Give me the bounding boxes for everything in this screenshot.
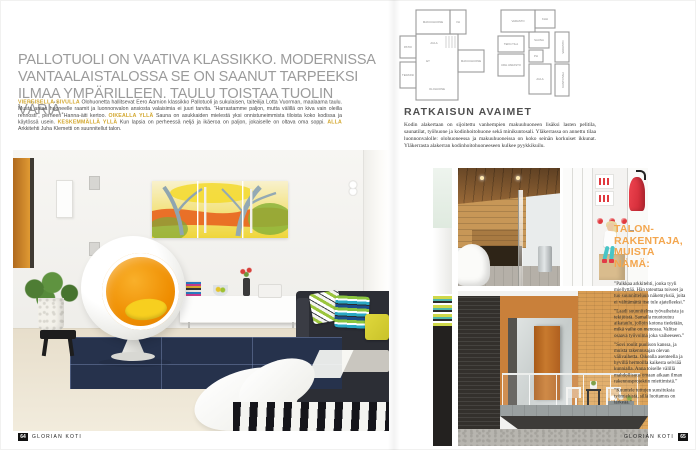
wall-vent [89,176,100,190]
solution-keys-text: Kodin alakertaan on sijoitettu vanhempie… [404,121,596,151]
page-number: 65 [678,433,688,441]
sideboard [180,296,302,323]
wall-picture-frame [56,180,73,218]
living-room-photo [13,150,389,431]
floor-plan-lower: VARASTO KHH SAUNA PH TEKN.TILA URH.VARAS… [498,10,569,96]
svg-text:MAKUUHUONE: MAKUUHUONE [461,59,481,63]
glass-wall [518,190,523,286]
terrace-table [586,389,601,391]
plant-pot [38,298,64,330]
folio-left: 64 GLORIAN KOTI [18,432,82,442]
floor-plan-upper: MAKUUHUONE VH AULA PATIO ET TERASSI MAKU… [400,10,484,100]
framed-print [595,191,614,206]
closet-doors [563,168,593,286]
builder-tips-text: ”Palkkaa arkkitehti, jonka tyyli miellyt… [614,281,690,427]
bathroom-window [433,168,452,229]
terrace-chair [566,387,581,398]
table-plant [590,381,597,389]
svg-text:TEKN.TILA: TEKN.TILA [504,42,518,46]
ceiling-spotlight [516,176,520,180]
red-bathrobe [629,177,645,211]
svg-text:KHH: KHH [542,17,548,21]
svg-text:AULA: AULA [536,77,543,81]
wall-sconce [347,180,359,196]
svg-text:MAKUUHUONE: MAKUUHUONE [423,20,443,24]
svg-text:KUNTOSALI: KUNTOSALI [561,72,565,88]
magazine-brand: GLORIAN KOTI [32,434,82,440]
radio [258,284,282,298]
svg-text:OLOHUONE: OLOHUONE [429,87,445,91]
caption-label: KESKEMMÄLLÄ YLLÄ [58,119,118,125]
gravel-ground [458,429,648,446]
svg-text:ET: ET [426,59,430,63]
ball-chair [81,236,185,340]
floor-plans: MAKUUHUONE VH AULA PATIO ET TERASSI MAKU… [398,6,583,105]
red-shoe [602,259,607,263]
tip-paragraph: ”Palkkaa arkkitehti, jonka tyyli miellyt… [614,281,690,305]
striped-rug [233,402,389,431]
yellow-pillow [365,314,389,340]
bathtub-edge [433,228,452,294]
dark-floor [433,326,452,446]
tip-paragraph: ”Sovi roolit puolison kanssa, ja muista … [614,342,690,385]
ball-chair-cushion [124,297,167,322]
magazine-spread: PALLOTUOLI ON VAATIVA KLASSIKKO. MODERNI… [0,0,696,450]
tip-paragraph: ”Laadi suunnitelma työvaiheista ja tekij… [614,308,690,338]
svg-text:SAUNA: SAUNA [534,38,544,42]
svg-text:URH.VARASTO: URH.VARASTO [501,63,522,67]
svg-text:AULA: AULA [430,41,437,45]
sauna-photo [458,168,560,286]
vase [243,278,250,296]
caption-paragraph: VIEREISELLÄ SIVULLA Olohuonetta hallitse… [18,99,342,132]
window [363,150,389,305]
striped-towels [433,294,452,326]
ceiling-spotlight [480,176,484,180]
folio-right: GLORIAN KOTI 65 [624,432,688,442]
svg-text:PATIO: PATIO [404,45,413,49]
bathtub [458,244,490,286]
sauna-bench [472,230,520,246]
page-number: 64 [18,433,28,441]
photo-captions: VIEREISELLÄ SIVULLA Olohuonetta hallitse… [18,99,342,137]
steel-bucket [538,246,552,272]
dark-wood-siding [458,296,500,446]
ball-chair-base [111,352,155,361]
orange-cabinet [13,158,34,268]
solution-keys-title: RATKAISUN AVAIMET [404,106,532,118]
framed-print [595,174,614,189]
birch-triptych-painting [152,181,288,238]
svg-text:VARASTO: VARASTO [511,19,525,23]
fruit-bowl [213,285,228,296]
magazine-brand: GLORIAN KOTI [624,434,674,440]
ball-chair-opening [102,253,179,330]
caption-label: OIKEALLA YLLÄ [108,113,153,119]
svg-text:PH: PH [534,54,538,58]
bathroom-strip-photo [433,168,452,446]
svg-text:VARASTO: VARASTO [561,40,565,54]
book-stack [186,281,201,296]
caption-label: VIEREISELLÄ SIVULLA [18,100,80,106]
caption-text: Arkkitehti Juha Klemetti on suunnitellut… [18,126,121,132]
caption-text: Kun lapsia on perheessä neljä ja ikäeroa… [120,119,325,125]
red-wall-hook [597,218,603,224]
tip-paragraph: ”Kuuntele tuttujen suosituksia työmiehis… [614,388,690,406]
builder-tips-title: TALON-RAKENTAJA, MUISTA NÄMÄ: [614,224,678,270]
caption-label: ALLA [327,119,342,125]
svg-text:VH: VH [456,20,460,24]
svg-text:TERASSI: TERASSI [402,73,414,77]
